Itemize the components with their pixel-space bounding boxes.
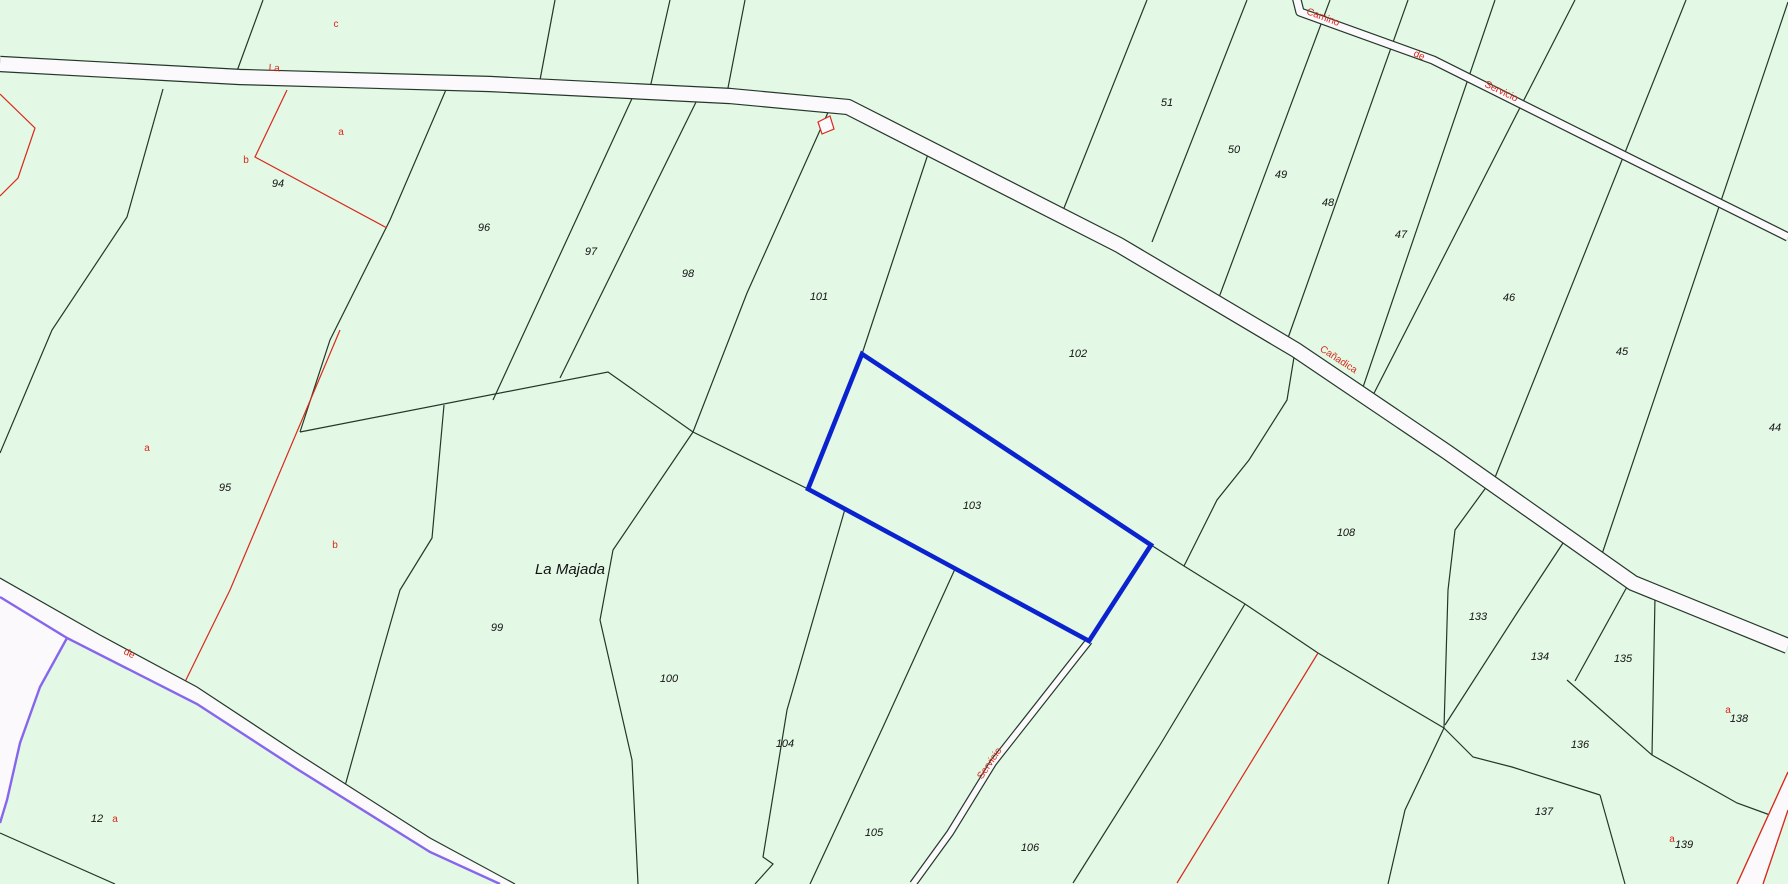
parcel-number-label: 44 bbox=[1769, 422, 1781, 434]
parcel-number-label: 45 bbox=[1616, 346, 1629, 358]
parcel-number-label: 94 bbox=[272, 178, 284, 190]
parcel-number-label: 136 bbox=[1571, 739, 1590, 751]
parcel-number-label: 97 bbox=[585, 246, 598, 258]
parcel-number-label: 133 bbox=[1469, 611, 1488, 623]
parcel-number-label: 49 bbox=[1275, 169, 1287, 181]
subparcel-letter-label: a bbox=[338, 127, 344, 138]
cadastral-map-viewport[interactable]: 9495969798991001011021031041051061081244… bbox=[0, 0, 1788, 884]
parcel-number-label: 103 bbox=[963, 500, 982, 512]
parcel-number-label: 139 bbox=[1675, 839, 1693, 851]
parcel-number-label: 138 bbox=[1730, 713, 1749, 725]
parcel-number-label: 108 bbox=[1337, 527, 1356, 539]
parcel-number-label: 50 bbox=[1228, 144, 1241, 156]
parcel-number-label: 135 bbox=[1614, 653, 1633, 665]
parcel-number-label: 104 bbox=[776, 738, 794, 750]
parcel-number-label: 134 bbox=[1531, 651, 1549, 663]
parcel-number-label: 99 bbox=[491, 622, 503, 634]
parcel-number-label: 100 bbox=[660, 673, 679, 685]
subparcel-letter-label: c bbox=[334, 19, 339, 30]
parcel-number-label: 51 bbox=[1161, 97, 1173, 109]
subparcel-letter-label: a bbox=[144, 443, 150, 454]
parcel-number-label: 101 bbox=[810, 291, 828, 303]
parcel-number-label: 12 bbox=[91, 813, 103, 825]
parcel-number-label: 106 bbox=[1021, 842, 1040, 854]
parcel-number-label: 95 bbox=[219, 482, 232, 494]
parcel-number-label: 137 bbox=[1535, 806, 1554, 818]
parcel-number-label: 102 bbox=[1069, 348, 1087, 360]
cadastral-map[interactable]: 9495969798991001011021031041051061081244… bbox=[0, 0, 1788, 884]
parcel-number-label: 98 bbox=[682, 268, 695, 280]
subparcel-letter-label: a bbox=[1725, 705, 1731, 716]
place-name-label: La Majada bbox=[535, 561, 605, 578]
subparcel-letter-label: b bbox=[243, 155, 249, 166]
parcel-number-label: 48 bbox=[1322, 197, 1335, 209]
parcel-number-label: 105 bbox=[865, 827, 884, 839]
subparcel-letter-label: b bbox=[332, 540, 338, 551]
road-name-label: La bbox=[268, 63, 280, 75]
parcel-number-label: 47 bbox=[1395, 229, 1408, 241]
parcel-number-label: 46 bbox=[1503, 292, 1516, 304]
subparcel-letter-label: a bbox=[1669, 834, 1675, 845]
subparcel-letter-label: a bbox=[112, 814, 118, 825]
parcel-number-label: 96 bbox=[478, 222, 491, 234]
